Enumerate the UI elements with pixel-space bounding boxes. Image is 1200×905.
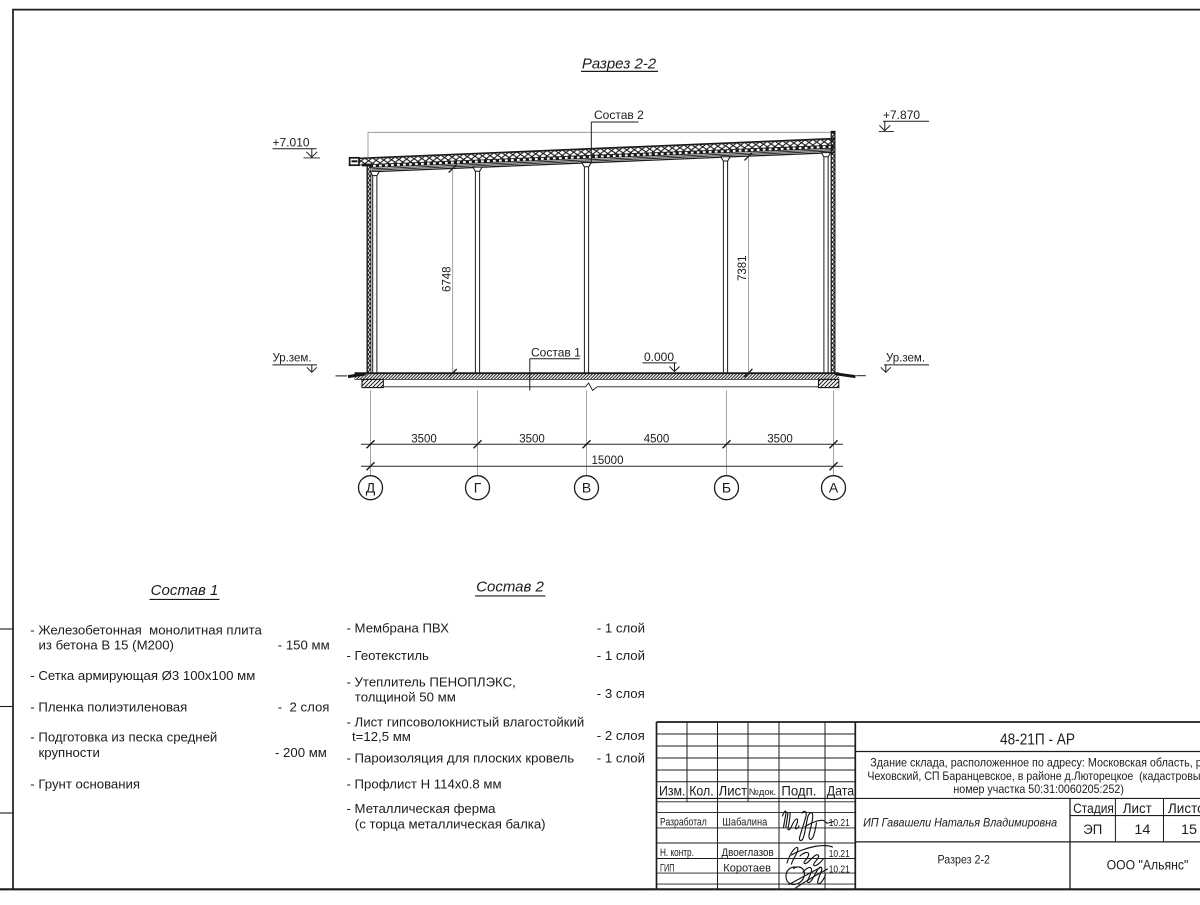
- svg-text:- Утеплитель ПЕНОПЛЭКС,: - Утеплитель ПЕНОПЛЭКС,: [347, 675, 516, 690]
- svg-text:В: В: [582, 480, 591, 496]
- svg-text:А: А: [829, 480, 839, 496]
- svg-text:- 3 слоя: - 3 слоя: [597, 686, 645, 701]
- svg-text:Ур.зем.: Ур.зем.: [273, 352, 312, 364]
- svg-text:ООО "Альянс": ООО "Альянс": [1107, 858, 1189, 873]
- svg-text:Двоеглазов: Двоеглазов: [722, 847, 774, 859]
- svg-text:15: 15: [1181, 822, 1197, 837]
- svg-text:толщиной 50 мм: толщиной 50 мм: [355, 689, 456, 704]
- svg-text:Стадия: Стадия: [1073, 801, 1114, 816]
- svg-text:3500: 3500: [519, 433, 545, 445]
- svg-text:- 1 слой: - 1 слой: [597, 750, 645, 765]
- svg-text:Состав 1: Состав 1: [531, 345, 581, 359]
- svg-text:Подп.: Подп.: [781, 783, 816, 799]
- svg-text:Состав 1: Состав 1: [151, 582, 219, 599]
- svg-text:Д: Д: [366, 480, 376, 496]
- svg-text:- Грунт основания: - Грунт основания: [30, 776, 140, 791]
- svg-text:Состав 2: Состав 2: [594, 108, 644, 122]
- svg-text:(с торца металлическая балка): (с торца металлическая балка): [355, 816, 546, 831]
- svg-text:Шабалина: Шабалина: [722, 817, 768, 829]
- svg-text:Б: Б: [722, 480, 731, 496]
- svg-text:+7.870: +7.870: [883, 108, 920, 122]
- svg-text:Г: Г: [474, 480, 482, 496]
- svg-text:Лист: Лист: [719, 783, 748, 799]
- svg-text:10.21: 10.21: [829, 848, 850, 860]
- svg-text:Разработал: Разработал: [660, 817, 707, 829]
- svg-text:- Пленка полиэтиленовая: - Пленка полиэтиленовая: [30, 699, 187, 714]
- svg-text:Листов: Листов: [1168, 801, 1200, 816]
- svg-text:Лист: Лист: [1123, 801, 1152, 816]
- svg-text:3500: 3500: [411, 433, 437, 445]
- svg-text:14: 14: [1134, 822, 1151, 837]
- svg-text:Дата: Дата: [827, 783, 855, 799]
- svg-text:7381: 7381: [737, 255, 749, 281]
- svg-text:Изм.: Изм.: [659, 783, 686, 799]
- svg-text:48-21П - АР: 48-21П - АР: [1000, 732, 1075, 749]
- svg-text:- Подготовка из песка средней: - Подготовка из песка средней: [30, 730, 217, 745]
- svg-text:ЭП: ЭП: [1083, 822, 1102, 837]
- svg-text:- Металлическая ферма: - Металлическая ферма: [347, 801, 497, 816]
- svg-text:3500: 3500: [767, 433, 793, 445]
- svg-text:Н. контр.: Н. контр.: [660, 847, 694, 859]
- svg-text:№док.: №док.: [749, 787, 777, 798]
- svg-text:Кол.: Кол.: [689, 783, 714, 799]
- svg-text:- 1 слой: - 1 слой: [597, 648, 645, 663]
- svg-text:t=12,5 мм: t=12,5 мм: [352, 729, 411, 744]
- svg-text:Ур.зем.: Ур.зем.: [886, 352, 925, 364]
- svg-text:- Геотекстиль: - Геотекстиль: [347, 648, 430, 663]
- svg-text:15000: 15000: [592, 455, 624, 467]
- svg-text:ИП Гавашели Наталья Владимиров: ИП Гавашели Наталья Владимировна: [863, 816, 1057, 830]
- svg-text:Разрез 2-2: Разрез 2-2: [582, 56, 657, 73]
- svg-text:Состав 2: Состав 2: [476, 578, 544, 595]
- svg-text:0.000: 0.000: [644, 350, 674, 364]
- svg-text:- Сетка армирующая Ø3 100х100: - Сетка армирующая Ø3 100х100 мм: [30, 668, 255, 683]
- svg-text:10.21: 10.21: [829, 863, 850, 875]
- svg-text:- Пароизоляция для плоских кро: - Пароизоляция для плоских кровель: [347, 750, 575, 765]
- svg-text:Разрез 2-2: Разрез 2-2: [938, 853, 991, 867]
- svg-text:10.21: 10.21: [829, 817, 850, 829]
- svg-text:ГИП: ГИП: [660, 862, 675, 874]
- svg-text:крупности: крупности: [39, 745, 100, 760]
- svg-text:- 150 мм: - 150 мм: [278, 638, 330, 653]
- svg-text:- 2 слоя: - 2 слоя: [597, 728, 645, 743]
- svg-text:- Железобетонная монолитная п: - Железобетонная монолитная плита: [30, 622, 262, 637]
- svg-text:Коротаев: Коротаев: [723, 862, 771, 874]
- svg-text:- Профлист Н 114х0.8 мм: - Профлист Н 114х0.8 мм: [347, 776, 502, 791]
- svg-text:+7.010: +7.010: [273, 135, 310, 149]
- svg-text:4500: 4500: [644, 433, 670, 445]
- svg-text:Здание склада, расположенное п: Здание склада, расположенное по адресу: …: [870, 756, 1200, 770]
- svg-text:6748: 6748: [441, 266, 453, 292]
- svg-text:- 200 мм: - 200 мм: [275, 745, 327, 760]
- svg-text:- 2 слоя: - 2 слоя: [278, 699, 330, 714]
- svg-text:- 1 слой: - 1 слой: [597, 621, 645, 636]
- svg-text:- Мембрана ПВХ: - Мембрана ПВХ: [347, 621, 450, 636]
- svg-text:номер участка 50:31:0060205:25: номер участка 50:31:0060205:252): [953, 782, 1124, 796]
- svg-text:- Лист гипсоволокнистый влагос: - Лист гипсоволокнистый влагостойкий: [347, 715, 585, 730]
- svg-text:из бетона В 15 (М200): из бетона В 15 (М200): [39, 638, 174, 653]
